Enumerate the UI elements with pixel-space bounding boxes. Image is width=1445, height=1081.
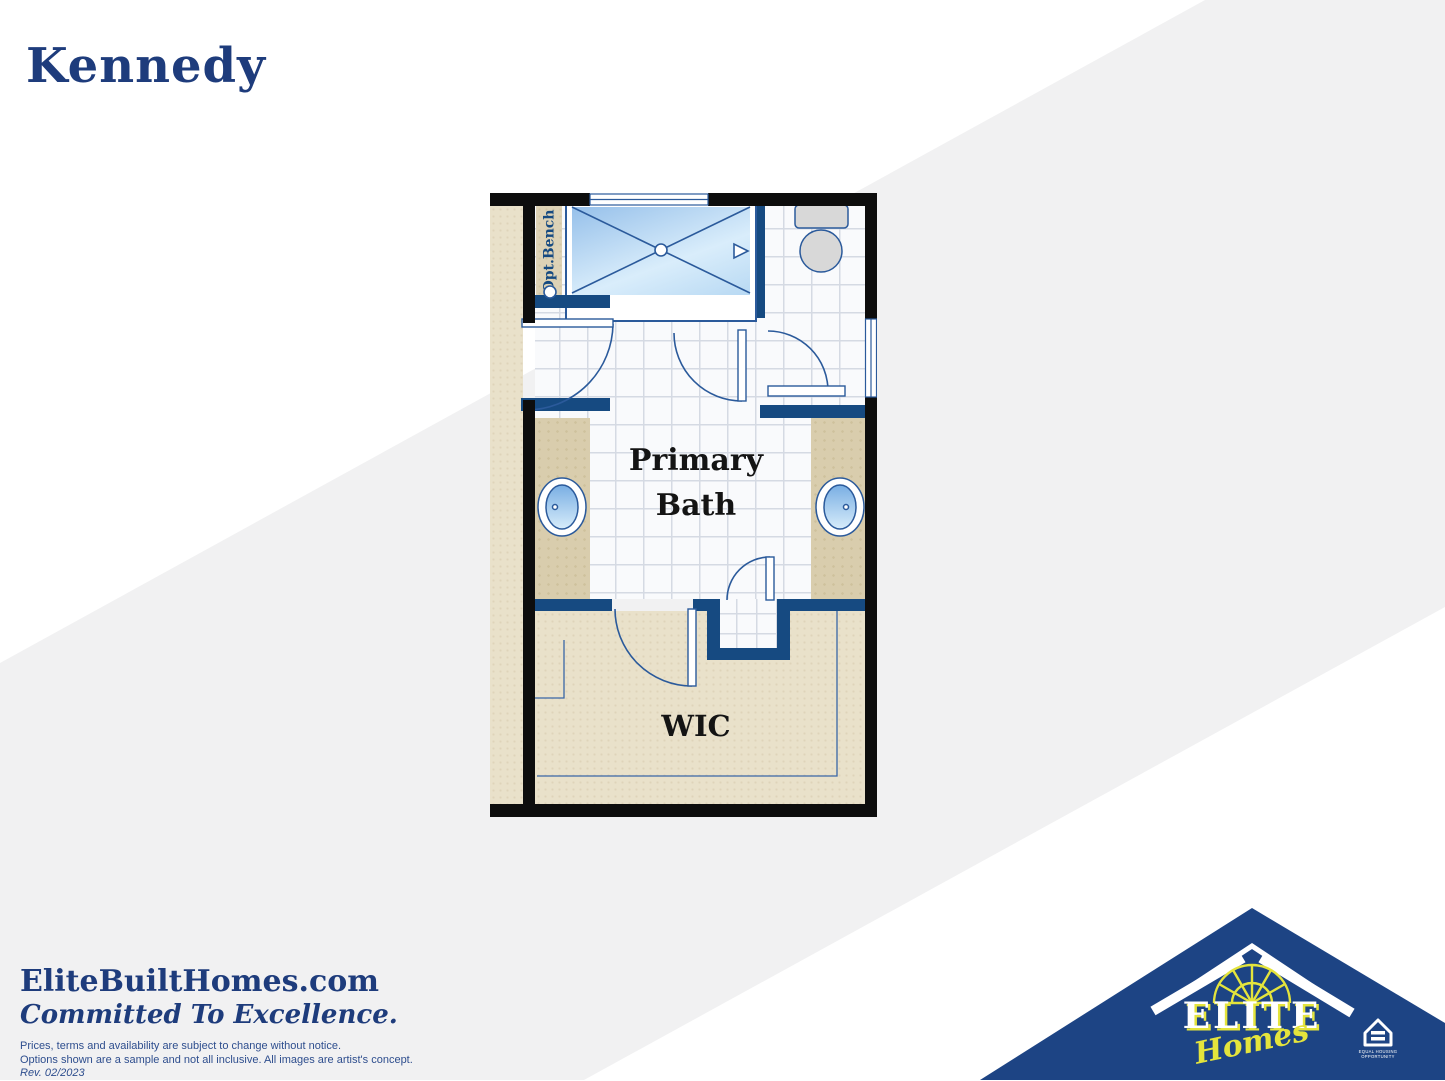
wic-shelf-lines xyxy=(535,611,837,776)
bath-door-leaf xyxy=(738,330,746,401)
elite-homes-logo: ELITE ELITE Homes EQUAL HOUSING OPPORTUN… xyxy=(940,870,1445,1080)
closet-door-leaf xyxy=(766,557,774,600)
eho-line2: OPPORTUNITY xyxy=(1361,1054,1394,1059)
right-faucet xyxy=(844,505,849,510)
toilet-door-leaf xyxy=(768,386,845,396)
toilet-room-window xyxy=(866,319,877,397)
primary-bath-label: Primary Bath xyxy=(571,438,821,528)
tagline: Committed To Excellence. xyxy=(20,1000,413,1030)
disclaimer-line2: Options shown are a sample and not all i… xyxy=(20,1054,413,1068)
primary-bath-line1: Primary xyxy=(571,438,821,483)
footer: EliteBuiltHomes.com Committed To Excelle… xyxy=(20,964,413,1081)
toilet xyxy=(795,205,848,272)
toilet-tank xyxy=(795,205,848,228)
shower-glass-markings xyxy=(544,207,750,298)
disclaimer-line1: Prices, terms and availability are subje… xyxy=(20,1040,413,1054)
toilet-bowl xyxy=(800,230,842,272)
revision-date: Rev. 02/2023 xyxy=(20,1067,413,1081)
right-sink xyxy=(816,478,864,536)
page-title: Kennedy xyxy=(26,38,266,94)
floor-plan: Opt.Bench xyxy=(490,193,877,817)
bench-seat xyxy=(544,286,556,298)
wic-door-leaf xyxy=(688,609,696,686)
shower-glass-window xyxy=(590,194,708,205)
wic-label: WIC xyxy=(596,709,796,743)
primary-bath-line2: Bath xyxy=(571,483,821,528)
entry-door-leaf xyxy=(522,319,613,327)
left-faucet xyxy=(553,505,558,510)
website-link[interactable]: EliteBuiltHomes.com xyxy=(20,964,413,999)
disclaimer: Prices, terms and availability are subje… xyxy=(20,1040,413,1081)
